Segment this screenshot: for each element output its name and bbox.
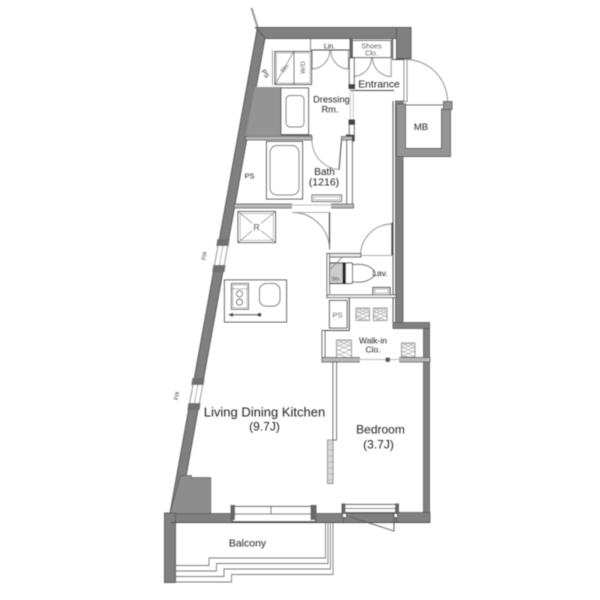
svg-text:FIX: FIX	[174, 391, 181, 401]
svg-text:(9.7J): (9.7J)	[249, 420, 280, 434]
svg-text:FIX: FIX	[201, 251, 208, 261]
svg-text:Rm.: Rm.	[321, 105, 338, 115]
svg-text:(3.7J): (3.7J)	[363, 438, 394, 452]
svg-text:Entrance: Entrance	[358, 80, 400, 91]
svg-text:Living Dining Kitchen: Living Dining Kitchen	[204, 405, 325, 420]
svg-text:Lav.: Lav.	[372, 268, 387, 278]
svg-text:R: R	[253, 223, 260, 233]
svg-text:PS: PS	[332, 311, 342, 320]
svg-text:Lin.: Lin.	[324, 44, 335, 51]
svg-text:MB: MB	[414, 122, 428, 133]
svg-text:Sto.: Sto.	[332, 277, 341, 283]
svg-text:PS: PS	[259, 69, 270, 81]
svg-text:W/D: W/D	[300, 61, 307, 74]
svg-text:(1216): (1216)	[309, 177, 339, 189]
svg-text:Clo.: Clo.	[365, 49, 378, 58]
svg-text:PS: PS	[244, 172, 254, 181]
svg-text:Clo.: Clo.	[365, 345, 380, 355]
svg-text:Balcony: Balcony	[229, 538, 267, 550]
svg-text:Dressing: Dressing	[313, 95, 350, 105]
svg-text:Bedroom: Bedroom	[356, 423, 405, 437]
